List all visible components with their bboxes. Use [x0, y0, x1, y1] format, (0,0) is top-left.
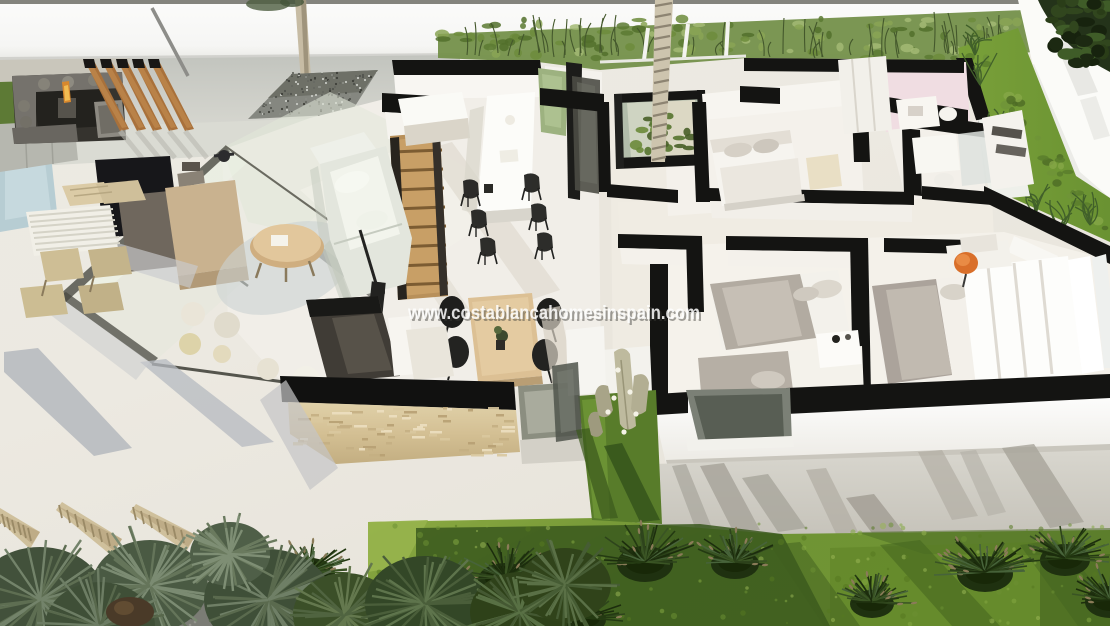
svg-text:www.costablancahomesinspain.co: www.costablancahomesinspain.com [407, 303, 700, 324]
